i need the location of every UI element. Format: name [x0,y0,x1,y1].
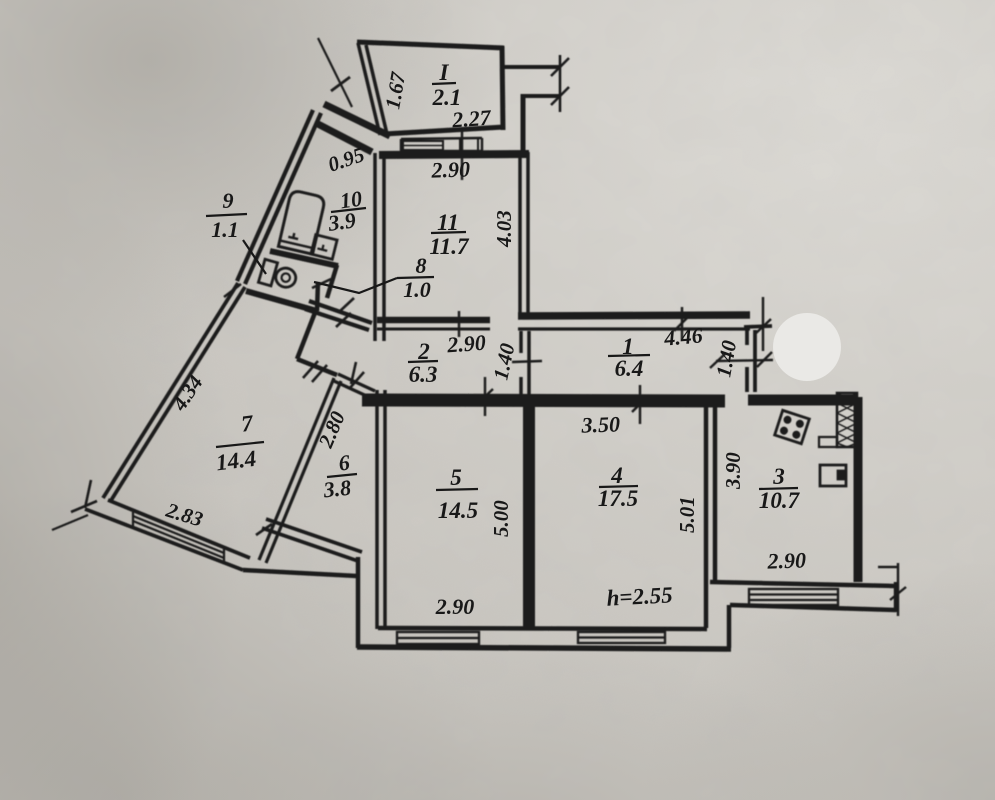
svg-text:3.90: 3.90 [721,452,745,490]
svg-text:10.7: 10.7 [759,488,801,513]
svg-text:5: 5 [450,465,462,490]
svg-text:3.8: 3.8 [321,475,352,503]
svg-text:4: 4 [610,463,623,488]
svg-text:5.01: 5.01 [675,496,699,533]
svg-text:8: 8 [416,253,427,278]
svg-text:3.50: 3.50 [580,411,620,437]
svg-text:14.4: 14.4 [215,446,258,476]
svg-text:3.9: 3.9 [326,207,358,236]
svg-text:17.5: 17.5 [598,486,638,511]
svg-text:2.27: 2.27 [450,105,492,133]
svg-text:1.1: 1.1 [211,217,239,242]
svg-text:5.00: 5.00 [489,500,513,537]
svg-text:2.90: 2.90 [430,156,470,182]
svg-text:9: 9 [223,188,234,213]
svg-text:14.5: 14.5 [438,498,478,523]
svg-text:6.4: 6.4 [615,356,644,381]
svg-text:h=2.55: h=2.55 [606,582,673,610]
svg-text:4.46: 4.46 [662,322,704,350]
svg-text:6.3: 6.3 [409,362,438,387]
svg-text:I: I [439,60,450,85]
svg-text:2.90: 2.90 [435,594,475,619]
svg-text:2.90: 2.90 [766,547,806,573]
svg-text:1.0: 1.0 [403,277,431,302]
svg-text:4.03: 4.03 [492,210,516,248]
svg-text:2.90: 2.90 [445,330,486,358]
svg-text:3: 3 [772,464,785,489]
svg-text:11.7: 11.7 [430,234,470,259]
